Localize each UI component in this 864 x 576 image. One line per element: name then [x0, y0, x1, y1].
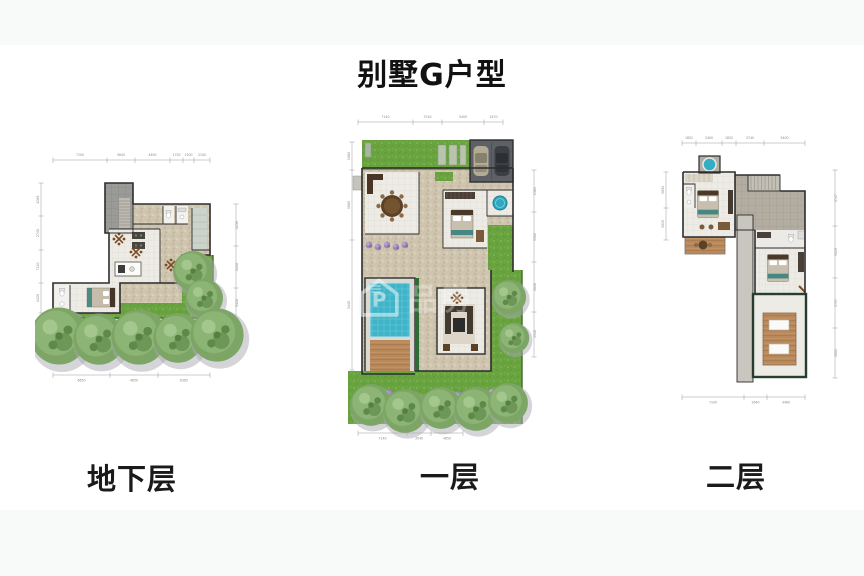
svg-text:2740: 2740	[36, 229, 40, 237]
pool-hedge	[415, 278, 419, 374]
svg-text:5400: 5400	[459, 115, 467, 119]
svg-text:6650: 6650	[77, 379, 85, 383]
svg-text:3400: 3400	[705, 136, 713, 140]
svg-text:2100: 2100	[198, 153, 206, 157]
svg-text:6365: 6365	[180, 379, 188, 383]
swimming-pool	[370, 283, 410, 337]
second-bedroom	[755, 230, 805, 293]
svg-text:5400: 5400	[780, 136, 788, 140]
second-floor-plan: 1852 3400 1832 3740 5400 7100 2640 4460 …	[658, 128, 848, 423]
front-lawn	[362, 140, 470, 170]
master-balcony	[685, 237, 725, 254]
svg-text:1832: 1832	[725, 136, 733, 140]
dining-table	[376, 190, 407, 221]
stairwell	[748, 175, 780, 191]
svg-text:1852: 1852	[685, 136, 693, 140]
svg-text:4630: 4630	[148, 153, 156, 157]
svg-text:7100: 7100	[76, 153, 84, 157]
svg-text:3740: 3740	[746, 136, 754, 140]
label-second-floor: 二层	[706, 454, 766, 496]
svg-text:4230: 4230	[235, 221, 239, 229]
svg-text:3320: 3320	[235, 299, 239, 307]
courtyard-planting	[435, 172, 453, 181]
floorplan-sheet: 别墅G户型	[0, 0, 864, 576]
entry-steps	[353, 176, 362, 190]
svg-text:3740: 3740	[423, 115, 431, 119]
svg-text:4650: 4650	[443, 437, 451, 441]
svg-text:7120: 7120	[36, 262, 40, 270]
svg-text:3025: 3025	[661, 220, 665, 228]
svg-text:3094: 3094	[661, 186, 665, 194]
pool-deck	[370, 340, 410, 371]
sofa-set	[443, 304, 475, 344]
side-garden	[488, 225, 513, 270]
first-floor-plan: 7140 3740 5400 2470 7140 3540 4650 1860 …	[345, 112, 540, 447]
master-suite	[683, 156, 735, 237]
svg-text:7140: 7140	[378, 437, 386, 441]
svg-text:4420: 4420	[36, 294, 40, 302]
svg-text:3529: 3529	[834, 248, 838, 256]
living-room	[437, 288, 485, 354]
garage	[470, 140, 513, 182]
round-tub	[703, 158, 716, 171]
svg-text:5860: 5860	[347, 201, 351, 209]
top-margin-band	[0, 0, 864, 45]
svg-text:3318: 3318	[533, 330, 537, 338]
svg-text:5801: 5801	[834, 349, 838, 357]
svg-text:3737: 3737	[834, 299, 838, 307]
svg-text:4085: 4085	[36, 195, 40, 203]
svg-text:5747: 5747	[834, 194, 838, 202]
basement-floor-plan: 7100 3640 4630 1750 1500 2100 6650 4650 …	[35, 138, 265, 393]
svg-text:3440: 3440	[347, 301, 351, 309]
svg-text:2470: 2470	[489, 115, 497, 119]
terrace-room	[753, 294, 806, 377]
svg-text:1860: 1860	[347, 152, 351, 160]
svg-text:4650: 4650	[130, 379, 138, 383]
svg-text:4460: 4460	[782, 401, 790, 405]
svg-text:3540: 3540	[415, 437, 423, 441]
svg-text:2840: 2840	[533, 283, 537, 291]
pool-area	[365, 278, 419, 374]
car-dark	[495, 146, 510, 176]
svg-text:3640: 3640	[117, 153, 125, 157]
bottom-margin-band	[0, 510, 864, 576]
svg-text:7100: 7100	[709, 401, 717, 405]
svg-text:1561: 1561	[533, 187, 537, 195]
label-basement-floor: 地下层	[87, 456, 177, 498]
svg-text:1750: 1750	[172, 153, 180, 157]
page-title: 别墅G户型	[0, 50, 864, 94]
svg-text:1500: 1500	[184, 153, 192, 157]
car-light	[474, 146, 489, 176]
spa-room	[487, 190, 513, 216]
svg-text:3302: 3302	[533, 233, 537, 241]
basement-stairs	[119, 198, 130, 228]
corridor	[737, 215, 753, 382]
label-first-floor: 一层	[420, 454, 480, 496]
svg-text:5440: 5440	[235, 263, 239, 271]
svg-text:7140: 7140	[381, 115, 389, 119]
svg-text:2640: 2640	[751, 401, 759, 405]
master-bedroom	[443, 190, 487, 248]
